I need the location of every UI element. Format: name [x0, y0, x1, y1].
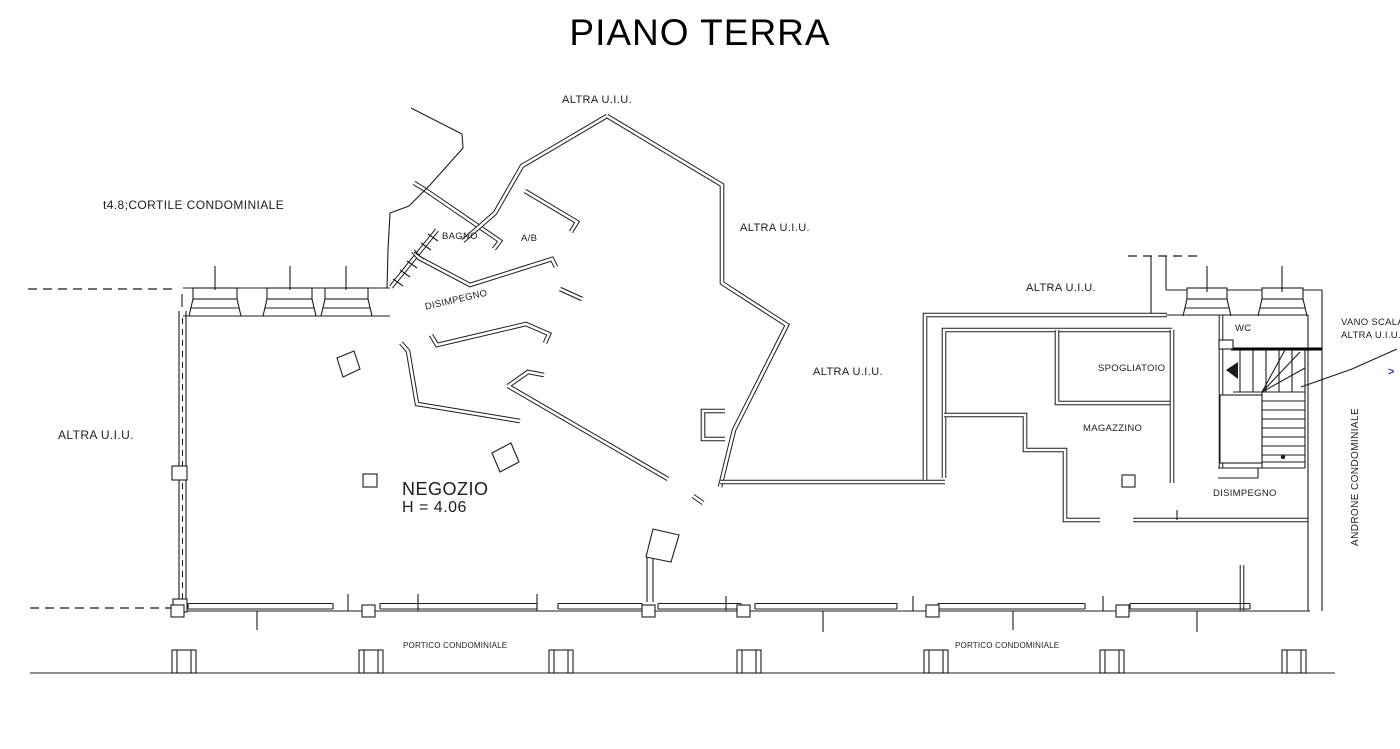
column: [337, 351, 360, 377]
page-title: PIANO TERRA: [0, 12, 1400, 54]
stair-direction-arrow: [1226, 362, 1238, 379]
room-height-note: H = 4.06: [402, 499, 467, 517]
stair-landing: [1220, 395, 1262, 463]
room-label-disimpegno-right: DISIMPEGNO: [1213, 488, 1277, 499]
room-label-negozio: NEGOZIO: [402, 479, 489, 500]
walls-double: [391, 116, 1308, 611]
label-altra-uiu-right: ALTRA U.I.U.: [1026, 282, 1096, 294]
label-altra-uiu-upper-right: ALTRA U.I.U.: [740, 222, 810, 234]
room-label-bagno: BAGNO: [442, 231, 478, 242]
window-left-1: [189, 288, 241, 316]
label-altra-uiu-top: ALTRA U.I.U.: [562, 94, 632, 106]
portico-columns: [172, 650, 1306, 673]
edge-mark-icon: >: [1388, 366, 1394, 378]
label-portico-left: PORTICO CONDOMINIALE: [403, 641, 507, 650]
window-right-2: [1258, 288, 1307, 316]
room-label-magazzino: MAGAZZINO: [1083, 423, 1142, 434]
floor-plan-drawing: [0, 0, 1400, 749]
walls-single: [28, 108, 1397, 673]
room-label-wc: WC: [1235, 323, 1251, 334]
window-left-3: [321, 288, 372, 316]
pillar: [172, 466, 187, 480]
label-cortile-condominiale: t4.8;CORTILE CONDOMINIALE: [103, 198, 284, 212]
window-left-2: [263, 288, 316, 316]
column: [363, 474, 377, 487]
room-label-spogliatoio: SPOGLIATOIO: [1098, 363, 1165, 374]
fixtures: [171, 266, 1307, 673]
window-right-1: [1183, 288, 1231, 316]
column: [492, 443, 519, 472]
label-altra-uiu-left: ALTRA U.I.U.: [58, 428, 134, 442]
label-portico-right: PORTICO CONDOMINIALE: [955, 641, 1059, 650]
column: [1122, 475, 1135, 487]
callout-vano-scala-line2: ALTRA U.I.U.: [1341, 330, 1400, 341]
label-altra-uiu-center: ALTRA U.I.U.: [813, 366, 883, 378]
floor-plan-page: PIANO TERRA ALTRA U.I.U. t4.8;CORTILE CO…: [0, 0, 1400, 749]
room-label-ab: A/B: [521, 233, 537, 244]
door-leaf: [646, 529, 679, 562]
callout-vano-scala-line1: VANO SCALA: [1341, 317, 1400, 328]
label-androne-condominiale: ANDRONE CONDOMINIALE: [1350, 408, 1361, 546]
